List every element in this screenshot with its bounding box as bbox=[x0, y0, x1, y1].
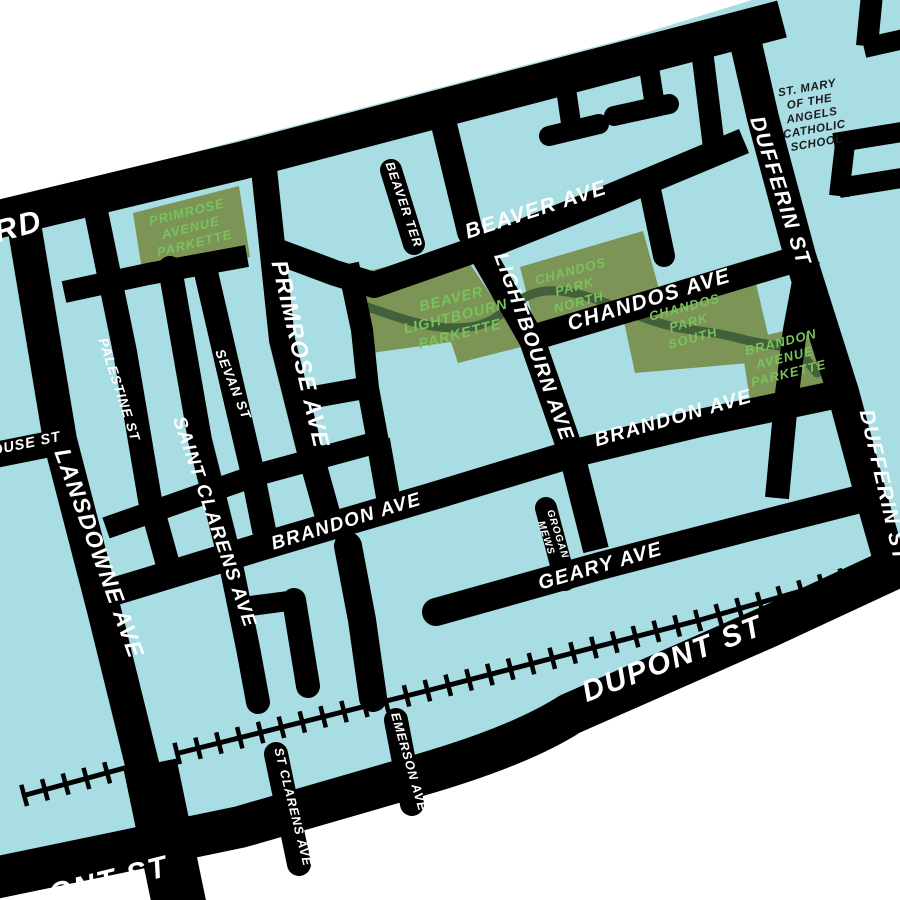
road-t-stub1-bar bbox=[549, 124, 599, 136]
road-t-stub2-bar bbox=[614, 104, 669, 116]
road-sevan-stub-connector bbox=[250, 600, 296, 606]
neighbourhood-map-poster: RD OUSE ST PALESTINE ST SAINT CLARENS AV… bbox=[0, 0, 900, 900]
road-stub-chandos-north bbox=[648, 180, 664, 256]
road-sevan-st-south-stub bbox=[294, 600, 308, 686]
road-tr-corner-b bbox=[864, 38, 900, 48]
map-canvas: RD OUSE ST PALESTINE ST SAINT CLARENS AV… bbox=[0, 0, 900, 900]
road-tr-corner-e bbox=[839, 177, 900, 188]
road-tr-corner-c bbox=[834, 131, 900, 143]
road-vertical-700 bbox=[700, 34, 714, 148]
